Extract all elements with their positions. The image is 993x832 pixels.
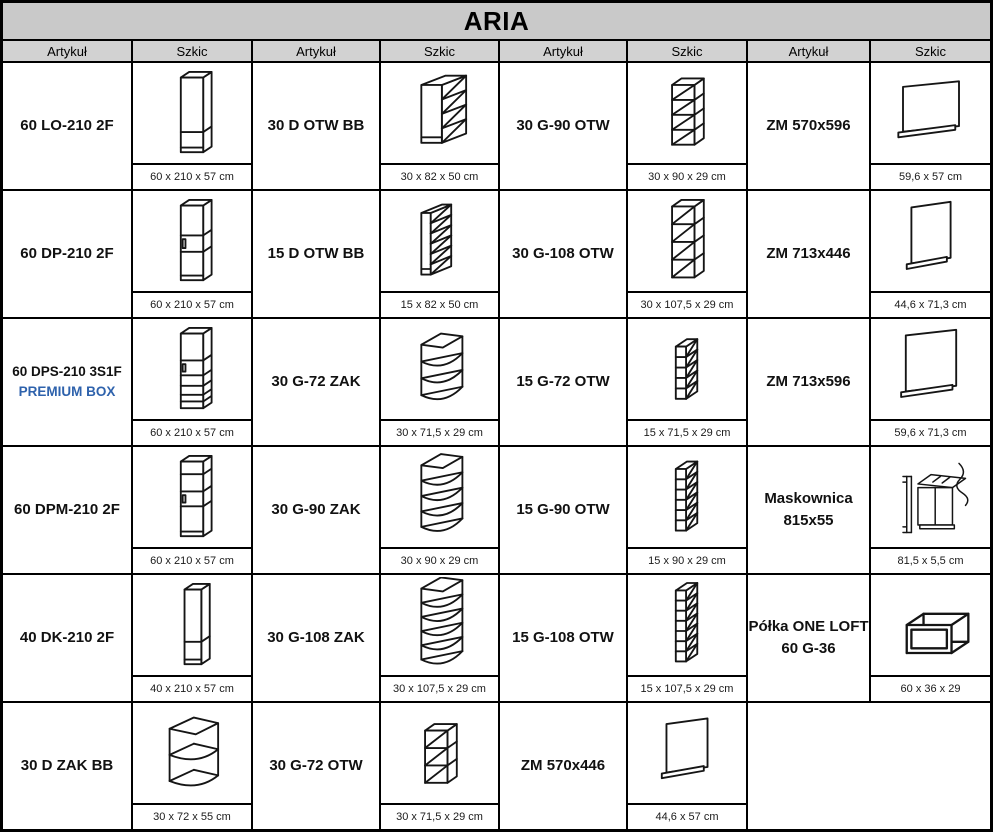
- article-name: 60 DPM-210 2F: [3, 447, 131, 573]
- article-name-line1: 30 G-108 ZAK: [267, 627, 365, 649]
- sketch-cell: 44,6 x 71,3 cm: [871, 191, 990, 317]
- article-name: 30 G-72 ZAK: [253, 319, 379, 445]
- sketch-dimensions: 59,6 x 71,3 cm: [871, 419, 990, 445]
- article-name: 15 G-90 OTW: [500, 447, 626, 573]
- article-name-line1: 30 D OTW BB: [268, 115, 365, 137]
- sketch-wall-corner-108-icon: [381, 575, 498, 675]
- sketch-wall-open-30-108-icon: [628, 191, 746, 291]
- empty-cell: [748, 703, 990, 829]
- sketch-cell: 40 x 210 x 57 cm: [133, 575, 251, 701]
- sketch-dimensions: 15 x 82 x 50 cm: [381, 291, 498, 317]
- sketch-wall-corner-90-icon: [381, 447, 498, 547]
- sketch-panel-713x446-icon: [871, 191, 990, 291]
- article-name-line1: 30 G-72 ZAK: [271, 371, 360, 393]
- article-name-line1: ZM 713x596: [766, 371, 850, 393]
- sketch-base-corner-open-shelf-icon: [133, 703, 251, 803]
- article-name-line1: 60 DPS-210 3S1F: [12, 362, 122, 382]
- article-name: 30 G-72 OTW: [253, 703, 379, 829]
- article-name-line1: ZM 570x446: [521, 755, 605, 777]
- article-name: ZM 570x596: [748, 63, 869, 189]
- article-name-line1: 30 G-108 OTW: [512, 243, 614, 265]
- article-name: 30 D OTW BB: [253, 63, 379, 189]
- sketch-dimensions: 15 x 107,5 x 29 cm: [628, 675, 746, 701]
- sketch-dimensions: 30 x 71,5 x 29 cm: [381, 803, 498, 829]
- sketch-cell: 60 x 210 x 57 cm: [133, 319, 251, 445]
- column-header-szkic: Szkic: [628, 41, 746, 61]
- sketch-tall-cabinet-narrow-icon: [133, 575, 251, 675]
- article-name: 40 DK-210 2F: [3, 575, 131, 701]
- sketch-wall-open-15-90-icon: [628, 447, 746, 547]
- sketch-cell: 60 x 210 x 57 cm: [133, 63, 251, 189]
- column-header-szkic: Szkic: [381, 41, 498, 61]
- column-header-artykul: Artykuł: [3, 41, 131, 61]
- sketch-dimensions: 60 x 210 x 57 cm: [133, 419, 251, 445]
- sketch-base-open-rack-30-icon: [381, 63, 498, 163]
- article-name: ZM 570x446: [500, 703, 626, 829]
- page-title: ARIA: [3, 3, 990, 39]
- catalog-page: ARIA ArtykułSzkicArtykułSzkicArtykułSzki…: [0, 0, 993, 832]
- sketch-dimensions: 44,6 x 57 cm: [628, 803, 746, 829]
- article-name: ZM 713x596: [748, 319, 869, 445]
- sketch-maskownica-strip-icon: [871, 447, 990, 547]
- article-name-line1: ZM 713x446: [766, 243, 850, 265]
- article-name-line1: 15 G-72 OTW: [516, 371, 609, 393]
- sketch-cell: 15 x 107,5 x 29 cm: [628, 575, 746, 701]
- sketch-cell: 81,5 x 5,5 cm: [871, 447, 990, 573]
- sketch-dimensions: 30 x 107,5 x 29 cm: [381, 675, 498, 701]
- sketch-tall-microwave-housing-icon: [133, 447, 251, 547]
- sketch-dimensions: 60 x 210 x 57 cm: [133, 163, 251, 189]
- sketch-cell: 30 x 107,5 x 29 cm: [381, 575, 498, 701]
- article-name: ZM 713x446: [748, 191, 869, 317]
- article-name-line2: 815x55: [783, 510, 833, 532]
- sketch-dimensions: 60 x 36 x 29: [871, 675, 990, 701]
- sketch-dimensions: 15 x 90 x 29 cm: [628, 547, 746, 573]
- sketch-tall-oven-drawer-housing-icon: [133, 319, 251, 419]
- article-name-line1: 60 LO-210 2F: [20, 115, 113, 137]
- sketch-dimensions: 30 x 82 x 50 cm: [381, 163, 498, 189]
- column-header-szkic: Szkic: [871, 41, 990, 61]
- sketch-cell: 44,6 x 57 cm: [628, 703, 746, 829]
- sketch-dimensions: 30 x 72 x 55 cm: [133, 803, 251, 829]
- article-name: 30 D ZAK BB: [3, 703, 131, 829]
- article-name-line1: 30 G-90 ZAK: [271, 499, 360, 521]
- article-name-line1: 60 DP-210 2F: [20, 243, 113, 265]
- sketch-dimensions: 81,5 x 5,5 cm: [871, 547, 990, 573]
- sketch-cell: 30 x 107,5 x 29 cm: [628, 191, 746, 317]
- sketch-dimensions: 44,6 x 71,3 cm: [871, 291, 990, 317]
- article-name: 60 DP-210 2F: [3, 191, 131, 317]
- column-header-artykul: Artykuł: [500, 41, 626, 61]
- column-header-artykul: Artykuł: [748, 41, 869, 61]
- sketch-cell: 30 x 82 x 50 cm: [381, 63, 498, 189]
- article-name-line1: 30 G-72 OTW: [269, 755, 362, 777]
- article-name-line1: 15 G-108 OTW: [512, 627, 614, 649]
- article-name: 30 G-108 ZAK: [253, 575, 379, 701]
- article-name-line2: 60 G-36: [781, 638, 835, 660]
- article-name-line1: ZM 570x596: [766, 115, 850, 137]
- article-name: 15 D OTW BB: [253, 191, 379, 317]
- sketch-wall-open-15-72-icon: [628, 319, 746, 419]
- article-name-line1: 30 D ZAK BB: [21, 755, 114, 777]
- article-name: 60 DPS-210 3S1FPREMIUM BOX: [3, 319, 131, 445]
- article-premium-label: PREMIUM BOX: [19, 382, 116, 402]
- sketch-cell: 30 x 90 x 29 cm: [628, 63, 746, 189]
- article-name-line1: 60 DPM-210 2F: [14, 499, 120, 521]
- article-name-line1: 30 G-90 OTW: [516, 115, 609, 137]
- sketch-dimensions: 30 x 71,5 x 29 cm: [381, 419, 498, 445]
- sketch-dimensions: 60 x 210 x 57 cm: [133, 291, 251, 317]
- sketch-wall-open-15-108-icon: [628, 575, 746, 675]
- article-name: Półka ONE LOFT60 G-36: [748, 575, 869, 701]
- sketch-cell: 59,6 x 57 cm: [871, 63, 990, 189]
- article-name-line1: Maskownica: [764, 488, 852, 510]
- sketch-cell: 15 x 90 x 29 cm: [628, 447, 746, 573]
- sketch-dimensions: 40 x 210 x 57 cm: [133, 675, 251, 701]
- sketch-cell: 60 x 210 x 57 cm: [133, 191, 251, 317]
- sketch-panel-570x596-icon: [871, 63, 990, 163]
- sketch-wall-corner-72-icon: [381, 319, 498, 419]
- article-name-line1: 15 G-90 OTW: [516, 499, 609, 521]
- sketch-cell: 15 x 71,5 x 29 cm: [628, 319, 746, 445]
- sketch-loft-shelf-frame-icon: [871, 575, 990, 675]
- catalog-table: ARIA ArtykułSzkicArtykułSzkicArtykułSzki…: [0, 0, 993, 832]
- sketch-cell: 60 x 210 x 57 cm: [133, 447, 251, 573]
- article-name: 15 G-72 OTW: [500, 319, 626, 445]
- sketch-dimensions: 59,6 x 57 cm: [871, 163, 990, 189]
- sketch-wall-open-30-90-icon: [628, 63, 746, 163]
- article-name: 30 G-90 ZAK: [253, 447, 379, 573]
- sketch-base-open-rack-15-icon: [381, 191, 498, 291]
- article-name: 15 G-108 OTW: [500, 575, 626, 701]
- column-header-artykul: Artykuł: [253, 41, 379, 61]
- sketch-cell: 60 x 36 x 29: [871, 575, 990, 701]
- sketch-dimensions: 15 x 71,5 x 29 cm: [628, 419, 746, 445]
- article-name: 30 G-90 OTW: [500, 63, 626, 189]
- sketch-dimensions: 30 x 90 x 29 cm: [381, 547, 498, 573]
- article-name-line1: Półka ONE LOFT: [749, 616, 869, 638]
- sketch-cell: 59,6 x 71,3 cm: [871, 319, 990, 445]
- sketch-cell: 30 x 71,5 x 29 cm: [381, 319, 498, 445]
- article-name: 60 LO-210 2F: [3, 63, 131, 189]
- sketch-dimensions: 30 x 90 x 29 cm: [628, 163, 746, 189]
- sketch-tall-oven-housing-icon: [133, 191, 251, 291]
- sketch-wall-open-30-72-icon: [381, 703, 498, 803]
- article-name: 30 G-108 OTW: [500, 191, 626, 317]
- sketch-cell: 30 x 90 x 29 cm: [381, 447, 498, 573]
- sketch-cell: 15 x 82 x 50 cm: [381, 191, 498, 317]
- article-name: Maskownica815x55: [748, 447, 869, 573]
- sketch-cell: 30 x 72 x 55 cm: [133, 703, 251, 829]
- sketch-panel-570x446-icon: [628, 703, 746, 803]
- sketch-panel-713x596-icon: [871, 319, 990, 419]
- sketch-dimensions: 30 x 107,5 x 29 cm: [628, 291, 746, 317]
- article-name-line1: 15 D OTW BB: [268, 243, 365, 265]
- sketch-dimensions: 60 x 210 x 57 cm: [133, 547, 251, 573]
- column-header-szkic: Szkic: [133, 41, 251, 61]
- article-name-line1: 40 DK-210 2F: [20, 627, 114, 649]
- sketch-cell: 30 x 71,5 x 29 cm: [381, 703, 498, 829]
- sketch-tall-cabinet-2-door-icon: [133, 63, 251, 163]
